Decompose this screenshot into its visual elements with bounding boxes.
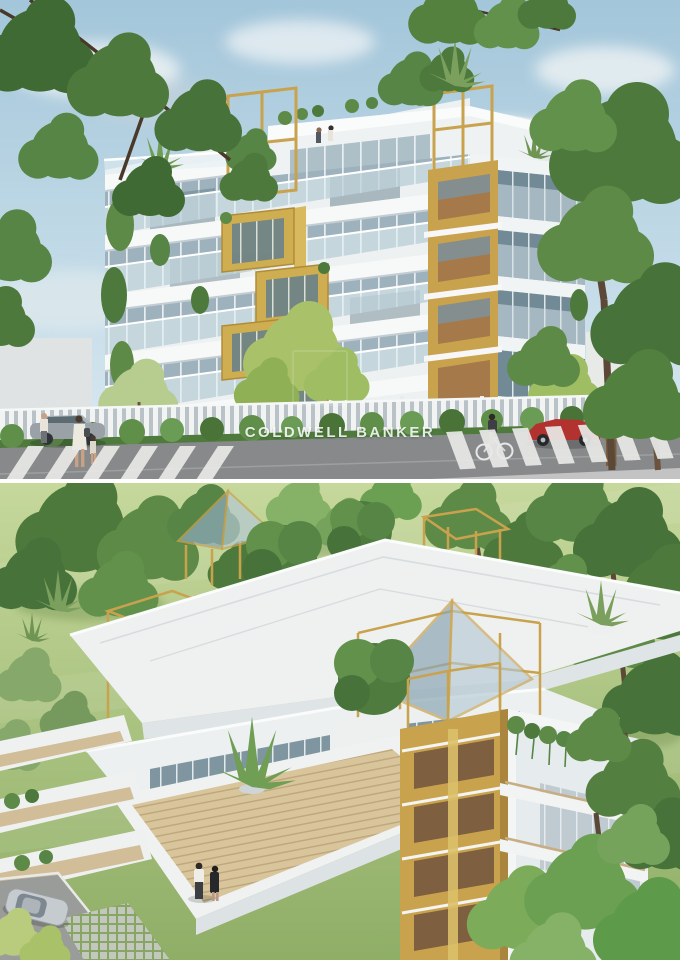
aerial-view-scene bbox=[0, 483, 680, 960]
property-render-collage: COLDWELL BANKER bbox=[0, 0, 680, 960]
aerial-view-photo bbox=[0, 483, 680, 960]
background-building-left bbox=[0, 338, 92, 410]
street-view-photo: COLDWELL BANKER bbox=[0, 0, 680, 479]
gold-corner-tower bbox=[424, 160, 502, 434]
street-view-scene bbox=[0, 0, 680, 479]
cascading-plants bbox=[570, 289, 588, 321]
